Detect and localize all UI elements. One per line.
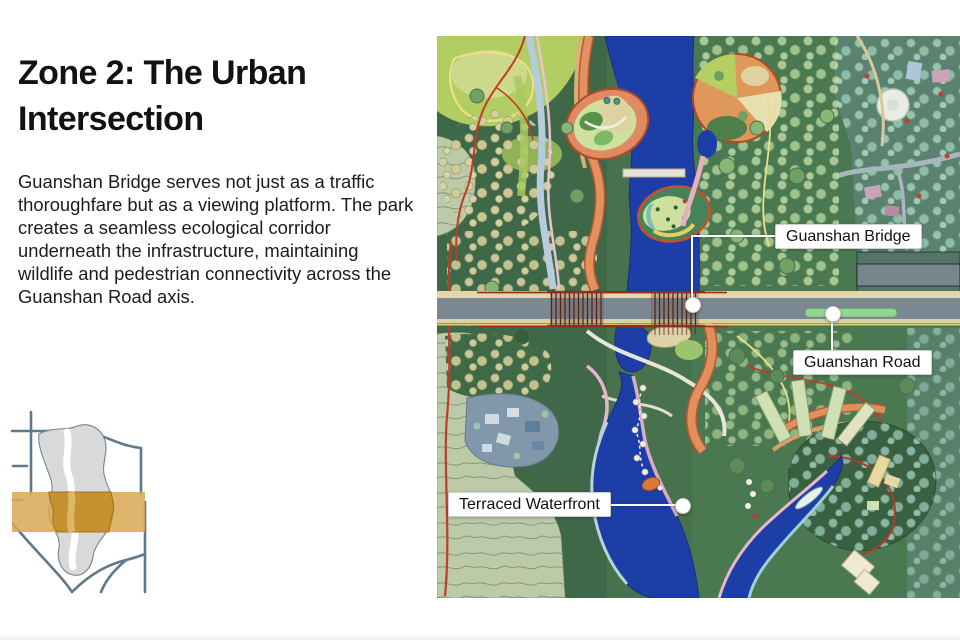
callout-dot-guanshan-bridge <box>685 297 701 313</box>
callout-leader-line <box>691 235 693 305</box>
callout-terraced-waterfront: Terraced Waterfront <box>448 492 611 517</box>
callout-dot-guanshan-road <box>825 306 841 322</box>
callout-guanshan-road: Guanshan Road <box>793 350 932 375</box>
callout-leader-line <box>603 504 677 506</box>
slide-zone-2: Zone 2: The Urban Intersection Guanshan … <box>0 0 960 640</box>
body-text: Guanshan Bridge serves not just as a tra… <box>18 170 414 308</box>
master-plan-map: Guanshan Bridge Guanshan Road Terraced W… <box>437 36 960 598</box>
callout-dot-terraced-waterfront <box>675 498 691 514</box>
page-title: Zone 2: The Urban Intersection <box>18 50 408 142</box>
zone-locator-minimap <box>8 404 150 598</box>
plan-inset-box <box>857 252 960 294</box>
next-row-peek <box>0 633 960 640</box>
callout-leader-line <box>693 235 777 237</box>
callout-leader-line <box>831 318 833 352</box>
minimap-zone-highlight <box>12 492 145 532</box>
road-median-strip <box>805 309 897 318</box>
callout-guanshan-bridge: Guanshan Bridge <box>775 224 922 249</box>
